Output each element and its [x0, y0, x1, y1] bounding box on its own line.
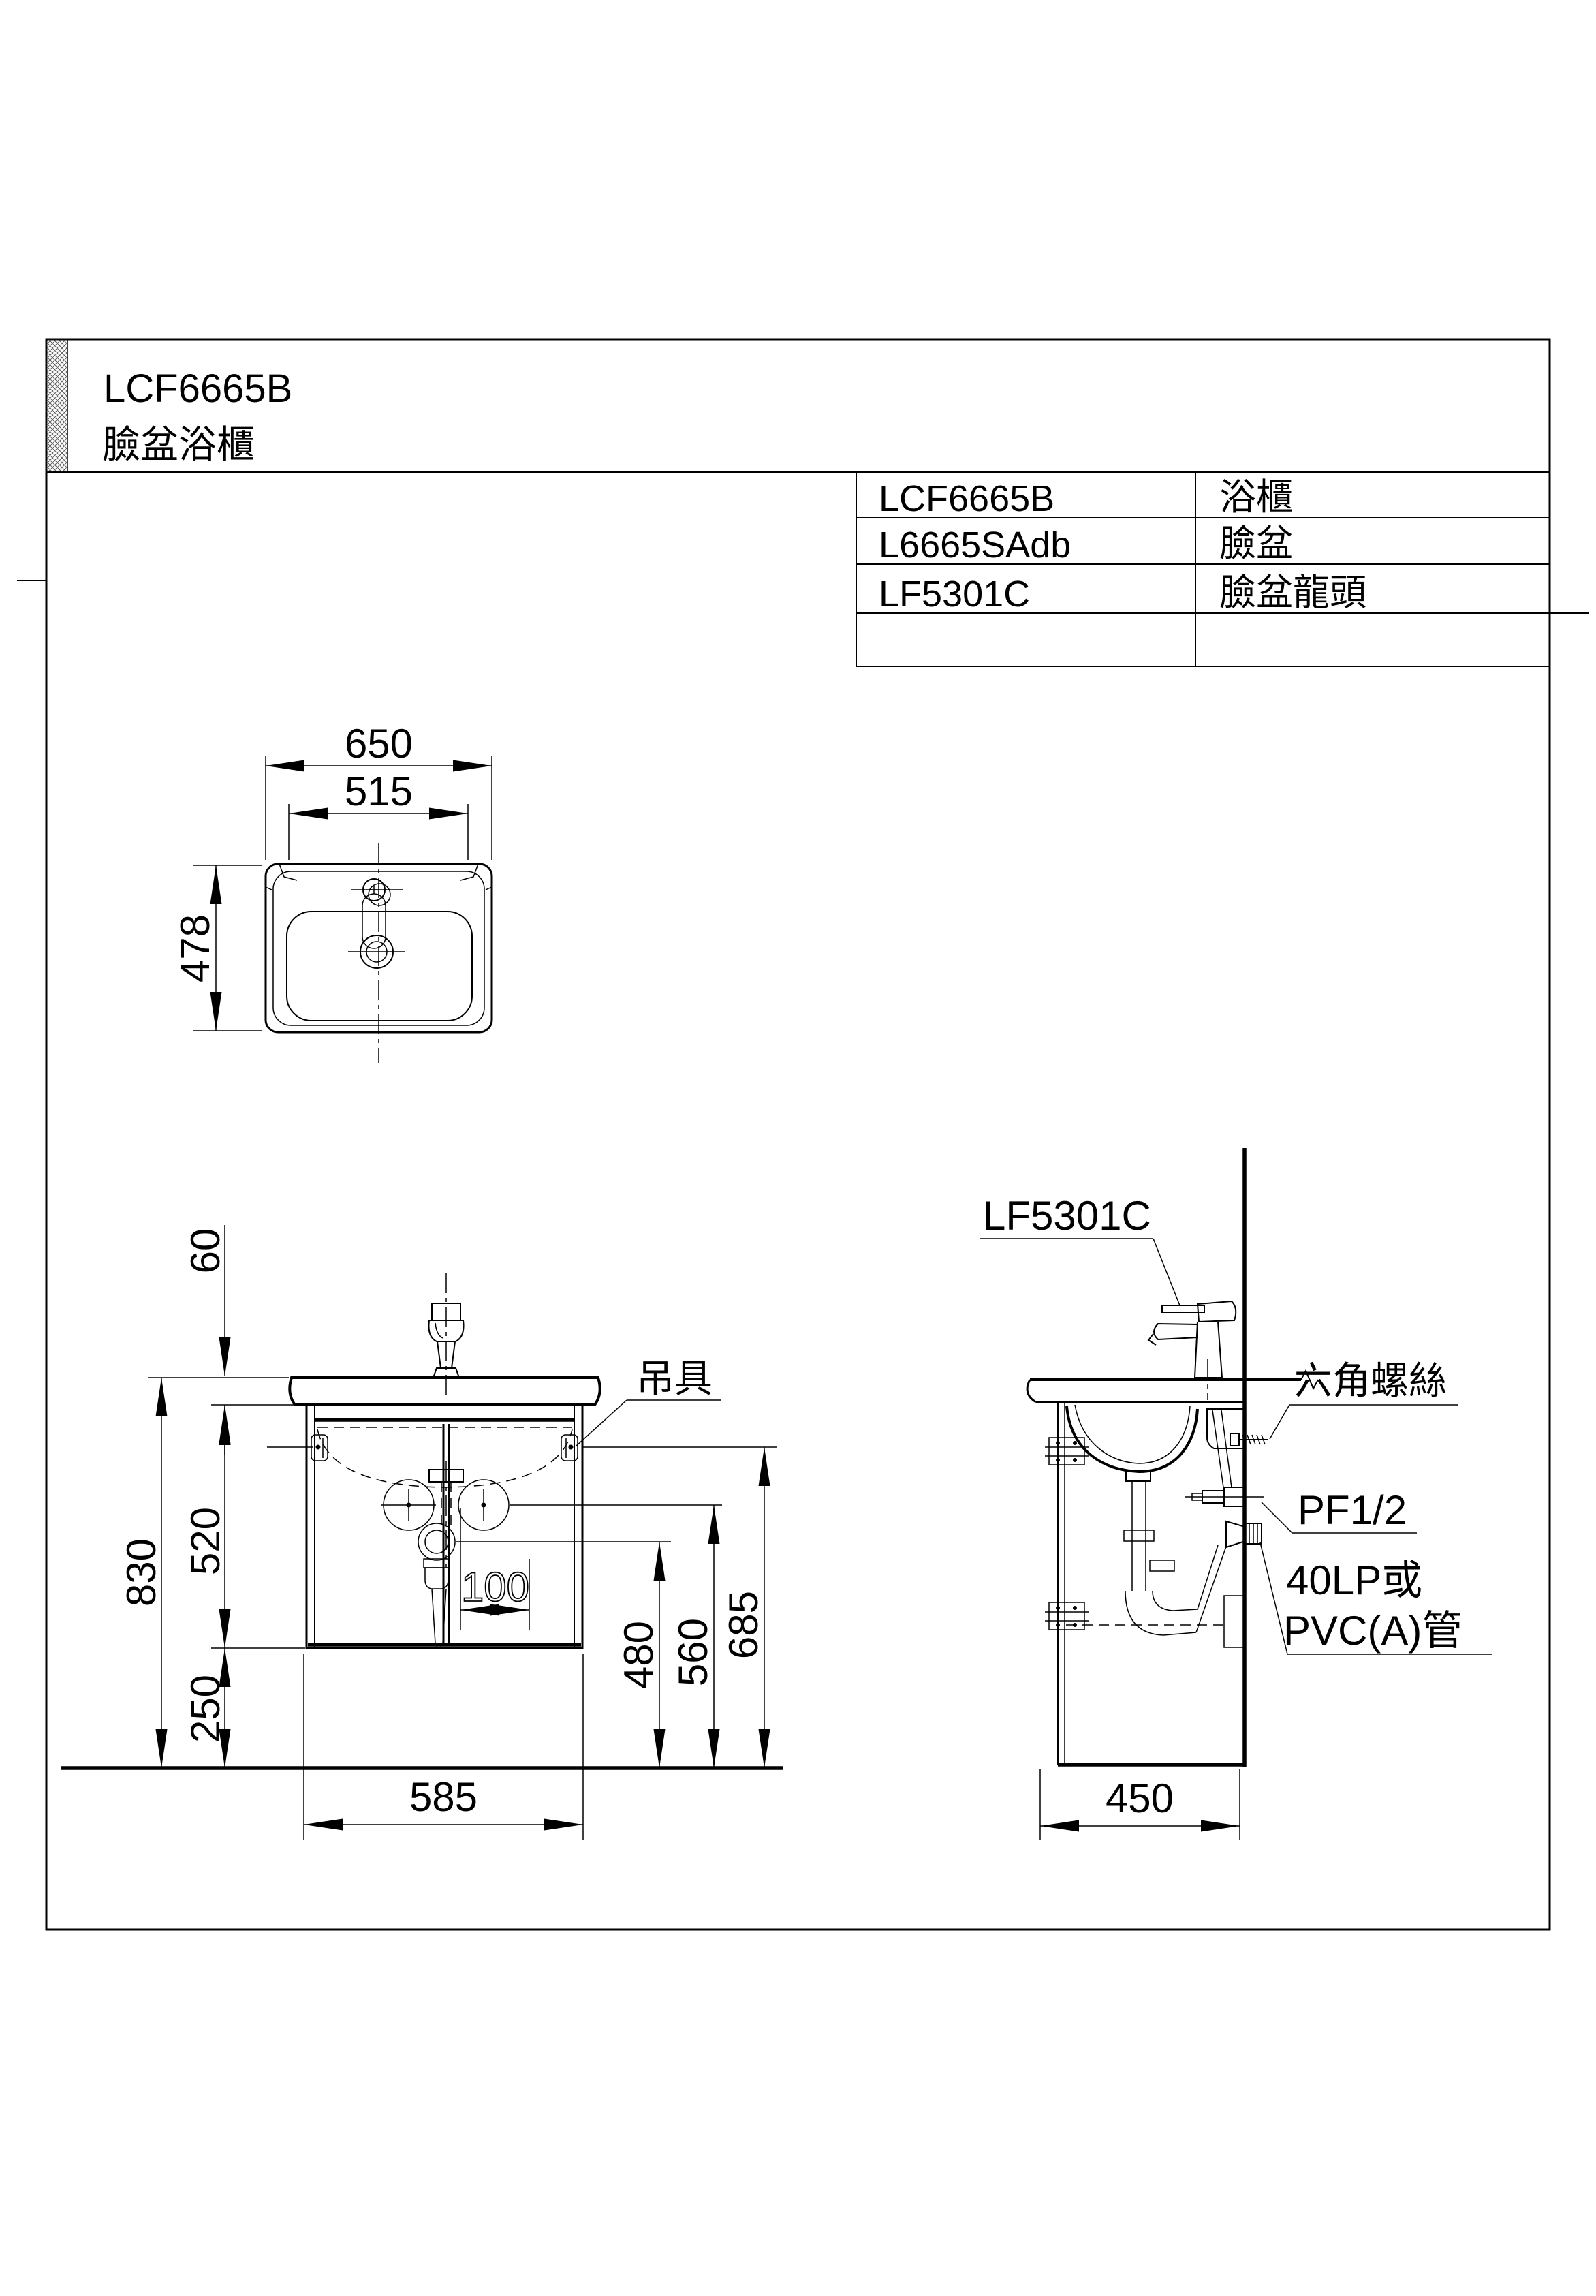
pipe-text-line1: 40LP或	[1286, 1557, 1422, 1603]
dim-text-585: 585	[409, 1774, 478, 1820]
side-view: LF5301C 六角螺絲 PF1/2 40LP或 PVC(A)管 450	[980, 1148, 1492, 1840]
part-code: LF5301C	[879, 574, 1030, 615]
front-counter	[290, 1378, 599, 1405]
label-hex-screw: 六角螺絲	[1270, 1359, 1458, 1439]
hanger-label-text: 吊具	[636, 1357, 713, 1400]
dim-685: 685	[582, 1447, 777, 1768]
dim-450: 450	[1040, 1769, 1240, 1840]
top-view-basin: 650 515 478	[172, 721, 492, 1063]
hex-screw	[1230, 1433, 1268, 1446]
side-counter	[1027, 1371, 1318, 1402]
hanger-brackets	[267, 1435, 578, 1461]
part-name: 浴櫃	[1219, 477, 1293, 518]
front-view: 吊具 60 830 520 250 685	[61, 1225, 783, 1840]
dim-text-515: 515	[345, 769, 413, 814]
side-basin-section	[1067, 1405, 1198, 1481]
label-drain-pipe: 40LP或 PVC(A)管	[1260, 1542, 1492, 1654]
title-product-name: 臉盆浴櫃	[102, 423, 255, 466]
dim-text-560: 560	[670, 1618, 716, 1686]
drawing-page: LCF6665B 臉盆浴櫃 LCF6665B 浴櫃 L6665SAdb 臉盆 L…	[0, 0, 1596, 2296]
parts-table: LCF6665B 浴櫃 L6665SAdb 臉盆 LF5301C 臉盆龍頭	[856, 472, 1550, 666]
front-drain-trap	[381, 1461, 509, 1648]
dim-text-830: 830	[119, 1538, 164, 1607]
hex-screw-text: 六角螺絲	[1294, 1359, 1447, 1402]
dim-text-60: 60	[183, 1228, 228, 1274]
dim-text-478: 478	[172, 914, 218, 982]
part-name: 臉盆龍頭	[1219, 572, 1366, 613]
dim-478: 478	[172, 865, 262, 1031]
table-row: LF5301C 臉盆龍頭	[879, 572, 1366, 615]
dim-250: 250	[183, 1648, 228, 1768]
title-hatch-bar	[46, 339, 67, 472]
side-cabinet	[1058, 1402, 1245, 1765]
wall-drain-flange	[1226, 1521, 1245, 1547]
dim-text-250: 250	[183, 1675, 228, 1743]
basin-bowl	[287, 912, 472, 1021]
table-row: LCF6665B 浴櫃	[879, 477, 1293, 519]
cad-sheet: LCF6665B 臉盆浴櫃 LCF6665B 浴櫃 L6665SAdb 臉盆 L…	[0, 0, 1596, 2296]
label-pf12: PF1/2	[1262, 1487, 1417, 1533]
pf12-text: PF1/2	[1298, 1487, 1407, 1533]
faucet-model-text: LF5301C	[983, 1193, 1151, 1239]
dim-text-520: 520	[183, 1507, 228, 1575]
dim-60: 60	[148, 1225, 305, 1455]
title-block: LCF6665B 臉盆浴櫃	[102, 367, 292, 466]
dim-text-685: 685	[721, 1591, 766, 1659]
dim-text-450: 450	[1106, 1775, 1174, 1821]
side-mounting-supply	[1185, 1409, 1264, 1506]
side-trap-piping	[1124, 1481, 1262, 1635]
label-faucet-model: LF5301C	[980, 1193, 1180, 1305]
dim-text-650: 650	[345, 721, 413, 766]
dim-830: 830	[119, 1378, 164, 1768]
side-brackets	[1045, 1438, 1089, 1630]
title-model: LCF6665B	[104, 367, 292, 411]
dim-585: 585	[304, 1654, 583, 1840]
dim-520: 520	[183, 1405, 305, 1648]
part-code: LCF6665B	[879, 478, 1054, 519]
side-faucet	[1148, 1301, 1236, 1400]
pipe-text-line2: PVC(A)管	[1283, 1608, 1462, 1654]
table-row: L6665SAdb 臉盆	[879, 523, 1293, 565]
dim-text-480: 480	[616, 1621, 661, 1689]
hidden-basin-bowl	[317, 1429, 572, 1487]
part-code: L6665SAdb	[879, 525, 1071, 565]
dim-100: 100	[460, 1508, 529, 1630]
dim-text-100: 100	[461, 1564, 529, 1610]
part-name: 臉盆	[1219, 523, 1293, 564]
